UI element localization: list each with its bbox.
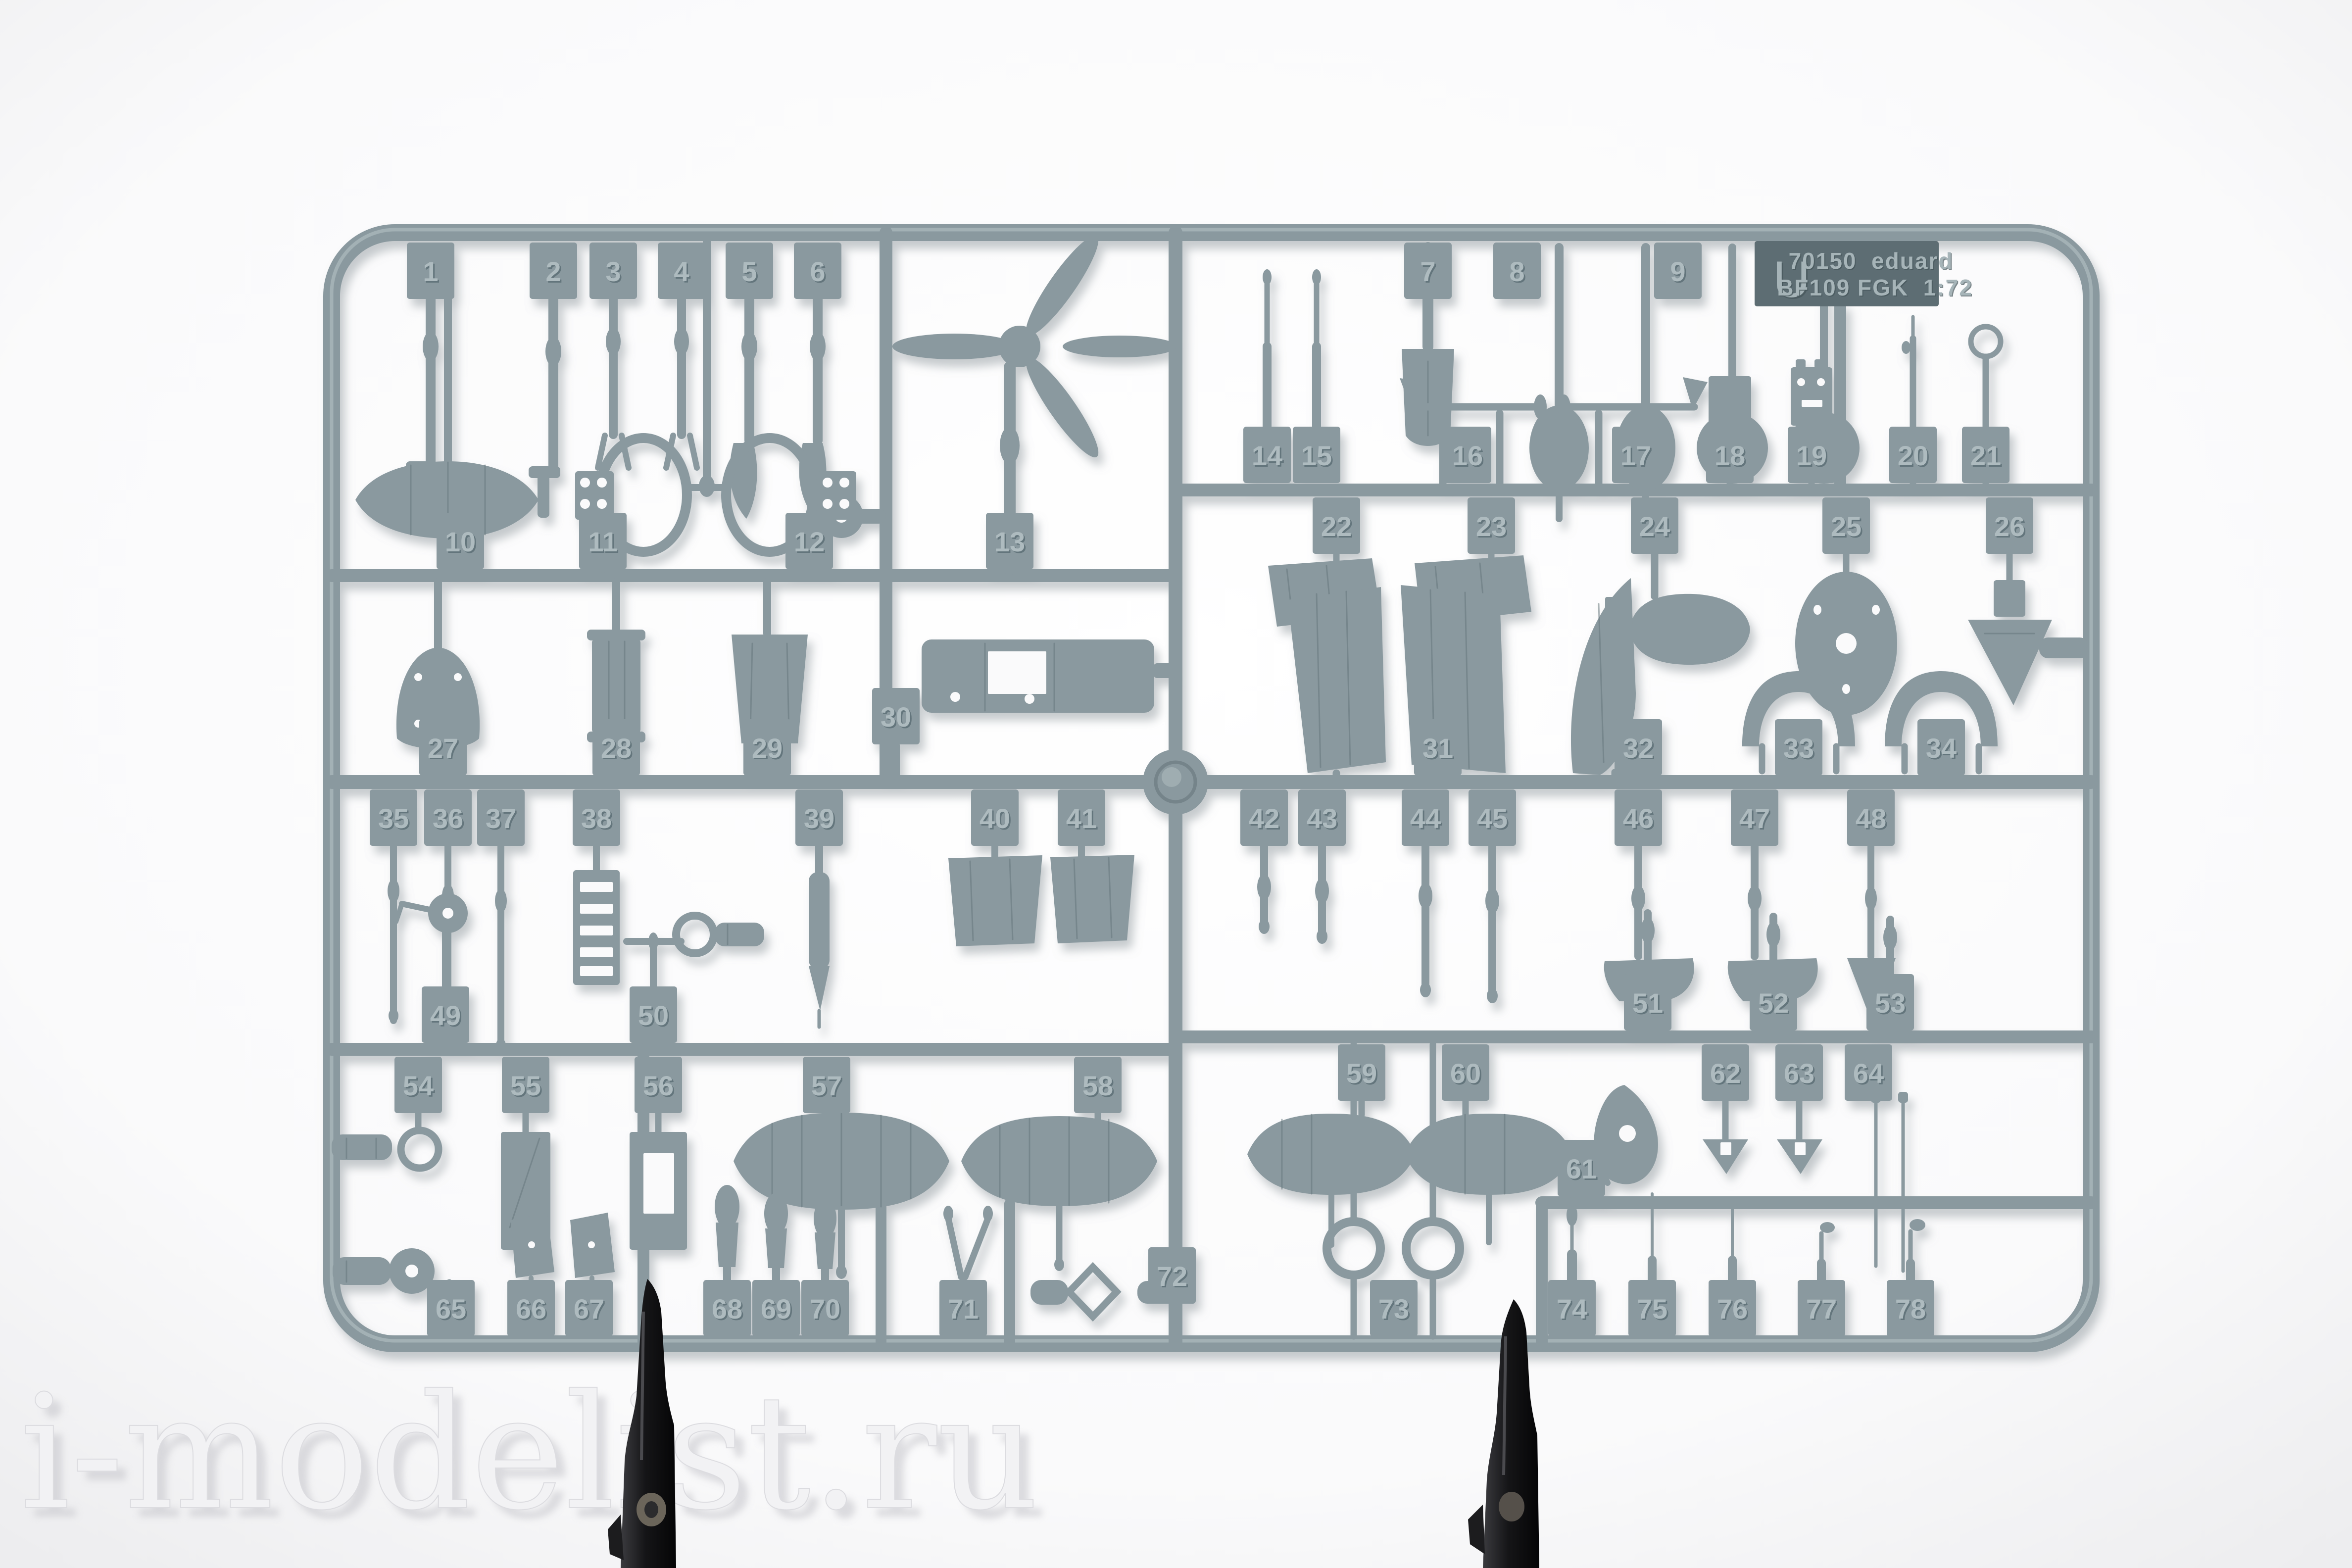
clamp-left-highlight [641, 1312, 643, 1460]
label-tab: U U 70150 eduard 70150 eduard BF109 FGK … [1755, 241, 1974, 310]
part-tag-38: 3838 [573, 789, 620, 846]
part-tag-67: 6767 [565, 1280, 613, 1336]
svg-text:64: 64 [1853, 1058, 1884, 1089]
part-tag-37: 3737 [477, 789, 525, 846]
part-tag-58: 5858 [1074, 1057, 1122, 1113]
svg-text:32: 32 [1623, 733, 1654, 764]
part-tag-14: 1414 [1243, 427, 1291, 483]
part-tag-6: 66 [794, 243, 841, 299]
svg-text:69: 69 [761, 1293, 791, 1324]
part-tag-68: 6868 [703, 1280, 751, 1336]
part-tag-22: 2222 [1313, 497, 1360, 554]
part-tag-65: 6565 [427, 1280, 475, 1336]
svg-text:41: 41 [1066, 803, 1097, 834]
svg-text:77: 77 [1806, 1293, 1837, 1324]
svg-text:49: 49 [430, 1000, 461, 1031]
sprue-part-40 [948, 846, 1042, 946]
part-tag-4: 44 [658, 243, 705, 299]
svg-text:10: 10 [445, 526, 476, 557]
svg-text:76: 76 [1717, 1293, 1748, 1324]
part-tag-42: 4242 [1240, 789, 1288, 846]
part-tag-20: 2020 [1889, 427, 1937, 483]
svg-text:54: 54 [403, 1070, 434, 1101]
part-tag-76: 7676 [1709, 1280, 1756, 1336]
part-tag-47: 4747 [1731, 789, 1778, 846]
part-tag-40: 4040 [971, 789, 1019, 846]
part-tag-33: 3333 [1775, 719, 1822, 776]
clamp-right-rivet [1499, 1492, 1524, 1521]
part-tag-30: 3030 [872, 688, 920, 744]
watermark: i-modelist.ru i-modelist.ru [20, 1361, 1048, 1554]
svg-text:4: 4 [674, 256, 689, 287]
svg-text:16: 16 [1452, 440, 1483, 471]
svg-text:68: 68 [712, 1293, 742, 1324]
part-tag-73: 7373 [1370, 1280, 1418, 1336]
svg-text:18: 18 [1715, 440, 1745, 471]
svg-text:22: 22 [1321, 511, 1352, 542]
svg-text:60: 60 [1450, 1058, 1481, 1089]
label-line2: BF109 FGK 1:72 [1777, 275, 1973, 300]
svg-text:38: 38 [581, 803, 612, 834]
svg-text:30: 30 [881, 701, 911, 733]
svg-text:35: 35 [378, 803, 409, 834]
part-tag-12: 1212 [785, 513, 833, 569]
svg-text:73: 73 [1378, 1293, 1409, 1324]
svg-text:28: 28 [601, 733, 632, 764]
svg-text:46: 46 [1623, 803, 1654, 834]
part-tag-59: 5959 [1338, 1044, 1385, 1101]
svg-text:66: 66 [516, 1293, 546, 1324]
part-tag-63: 6363 [1775, 1044, 1823, 1101]
label-line1: 70150 eduard [1789, 248, 1954, 274]
svg-text:70: 70 [810, 1293, 840, 1324]
part-tag-34: 3434 [1917, 719, 1965, 776]
clamp-left-rivet-hole [644, 1501, 658, 1518]
part-tag-29: 2929 [743, 719, 791, 776]
svg-text:42: 42 [1249, 803, 1279, 834]
svg-text:1: 1 [423, 256, 438, 287]
part-tag-5: 55 [726, 243, 773, 299]
svg-text:25: 25 [1831, 511, 1862, 542]
svg-text:29: 29 [752, 733, 783, 764]
svg-text:17: 17 [1620, 440, 1651, 471]
part-tag-77: 7777 [1798, 1280, 1845, 1336]
part-tag-43: 4343 [1298, 789, 1346, 846]
sprue-part-67 [570, 1213, 615, 1282]
svg-text:55: 55 [510, 1070, 541, 1101]
svg-text:27: 27 [428, 733, 458, 764]
svg-text:26: 26 [1994, 511, 2025, 542]
svg-text:62: 62 [1710, 1058, 1741, 1089]
part-tag-10: 1010 [437, 513, 484, 569]
svg-text:20: 20 [1898, 440, 1928, 471]
svg-text:67: 67 [574, 1293, 604, 1324]
part-tag-55: 5555 [502, 1057, 549, 1113]
svg-text:59: 59 [1346, 1058, 1377, 1089]
part-tag-9: 99 [1654, 243, 1702, 299]
part-tag-24: 2424 [1631, 497, 1678, 554]
svg-text:78: 78 [1895, 1293, 1926, 1324]
svg-text:43: 43 [1307, 803, 1337, 834]
part-tag-61: 6161 [1558, 1140, 1605, 1196]
part-tag-28: 2828 [592, 719, 640, 776]
part-tag-2: 22 [530, 243, 577, 299]
svg-text:57: 57 [811, 1070, 842, 1101]
svg-text:65: 65 [436, 1293, 466, 1324]
part-tag-32: 3232 [1615, 719, 1662, 776]
part-tag-1: 11 [407, 243, 454, 299]
svg-text:71: 71 [948, 1293, 979, 1324]
svg-text:40: 40 [980, 803, 1010, 834]
part-tag-15: 1515 [1293, 427, 1340, 483]
part-tag-70: 7070 [801, 1280, 849, 1336]
part-tag-50: 5050 [630, 986, 677, 1043]
part-tag-3: 33 [589, 243, 637, 299]
sprue-part-56 [630, 1113, 687, 1250]
part-tag-72: 7272 [1148, 1247, 1196, 1304]
svg-text:34: 34 [1926, 733, 1957, 764]
part-tag-25: 2525 [1822, 497, 1870, 554]
part-tag-78: 7878 [1887, 1280, 1934, 1336]
svg-text:19: 19 [1796, 440, 1827, 471]
part-tag-71: 7171 [939, 1280, 987, 1336]
watermark-text: i-modelist.ru [20, 1361, 1039, 1545]
part-tag-17: 1717 [1612, 427, 1660, 483]
part-tag-7: 77 [1404, 243, 1452, 299]
part-tag-39: 3939 [795, 789, 843, 846]
svg-text:45: 45 [1477, 803, 1508, 834]
part-tag-36: 3636 [424, 789, 472, 846]
part-tag-16: 1616 [1444, 427, 1491, 483]
svg-text:31: 31 [1422, 733, 1453, 764]
svg-text:14: 14 [1252, 440, 1282, 471]
part-tag-35: 3535 [370, 789, 417, 846]
part-tag-52: 5252 [1750, 974, 1797, 1030]
part-tag-27: 2727 [419, 719, 467, 776]
part-tag-62: 6262 [1702, 1044, 1749, 1101]
part-tag-41: 4141 [1058, 789, 1105, 846]
svg-text:48: 48 [1856, 803, 1886, 834]
svg-text:9: 9 [1670, 256, 1685, 287]
sprue-part-41 [1050, 846, 1134, 943]
product-photo: i-modelist.ru i-modelist.ru 112233445566… [0, 0, 2352, 1568]
svg-text:37: 37 [486, 803, 516, 834]
svg-text:2: 2 [545, 256, 561, 287]
part-tag-57: 5757 [803, 1057, 850, 1113]
part-tag-46: 4646 [1615, 789, 1662, 846]
part-tag-31: 3131 [1414, 719, 1462, 776]
part-tag-19: 1919 [1788, 427, 1835, 483]
part-tag-49: 4949 [422, 986, 469, 1043]
svg-text:3: 3 [605, 256, 621, 287]
svg-text:6: 6 [810, 256, 825, 287]
svg-text:8: 8 [1509, 256, 1524, 287]
svg-text:13: 13 [994, 526, 1025, 557]
svg-text:47: 47 [1739, 803, 1770, 834]
part-tag-26: 2626 [1986, 497, 2033, 554]
part-tag-75: 7575 [1628, 1280, 1676, 1336]
svg-text:7: 7 [1420, 256, 1435, 287]
svg-text:72: 72 [1157, 1261, 1187, 1292]
part-tag-23: 2323 [1468, 497, 1515, 554]
svg-text:5: 5 [741, 256, 757, 287]
part-tag-69: 6969 [752, 1280, 800, 1336]
part-tag-45: 4545 [1469, 789, 1516, 846]
svg-text:11: 11 [588, 526, 617, 557]
part-tag-51: 5151 [1624, 974, 1671, 1030]
svg-text:50: 50 [638, 1000, 669, 1031]
part-tag-56: 5656 [635, 1057, 682, 1113]
clamp-right-highlight [1504, 1336, 1506, 1475]
svg-text:21: 21 [1970, 440, 2001, 471]
svg-text:15: 15 [1301, 440, 1332, 471]
part-tag-11: 1111 [579, 513, 627, 569]
svg-text:53: 53 [1875, 987, 1906, 1019]
svg-text:63: 63 [1784, 1058, 1814, 1089]
svg-text:39: 39 [804, 803, 834, 834]
part-tag-48: 4848 [1847, 789, 1895, 846]
part-tag-66: 6666 [507, 1280, 555, 1336]
svg-text:74: 74 [1557, 1293, 1587, 1324]
part-tag-18: 1818 [1706, 427, 1754, 483]
svg-text:51: 51 [1632, 987, 1663, 1019]
sprue-part-66 [511, 1213, 554, 1282]
part-tag-60: 6060 [1442, 1044, 1489, 1101]
part-tag-44: 4444 [1402, 789, 1449, 846]
svg-text:75: 75 [1637, 1293, 1667, 1324]
svg-text:52: 52 [1758, 987, 1789, 1019]
svg-text:23: 23 [1476, 511, 1507, 542]
photo-canvas: i-modelist.ru i-modelist.ru 112233445566… [0, 0, 2352, 1568]
part-tag-54: 5454 [394, 1057, 442, 1113]
part-tag-13: 1313 [986, 513, 1033, 569]
part-tag-64: 6464 [1845, 1044, 1892, 1101]
svg-text:12: 12 [794, 526, 825, 557]
svg-text:24: 24 [1639, 511, 1670, 542]
svg-text:61: 61 [1566, 1153, 1597, 1184]
part-tag-21: 2121 [1962, 427, 2009, 483]
svg-text:58: 58 [1082, 1070, 1113, 1101]
svg-text:56: 56 [643, 1070, 674, 1101]
center-boss-highlight [1162, 767, 1181, 787]
part-tag-74: 7474 [1548, 1280, 1596, 1336]
svg-text:36: 36 [433, 803, 463, 834]
svg-text:44: 44 [1410, 803, 1441, 834]
part-tag-8: 88 [1493, 243, 1541, 299]
part-tag-53: 5353 [1866, 974, 1914, 1030]
svg-text:33: 33 [1783, 733, 1814, 764]
